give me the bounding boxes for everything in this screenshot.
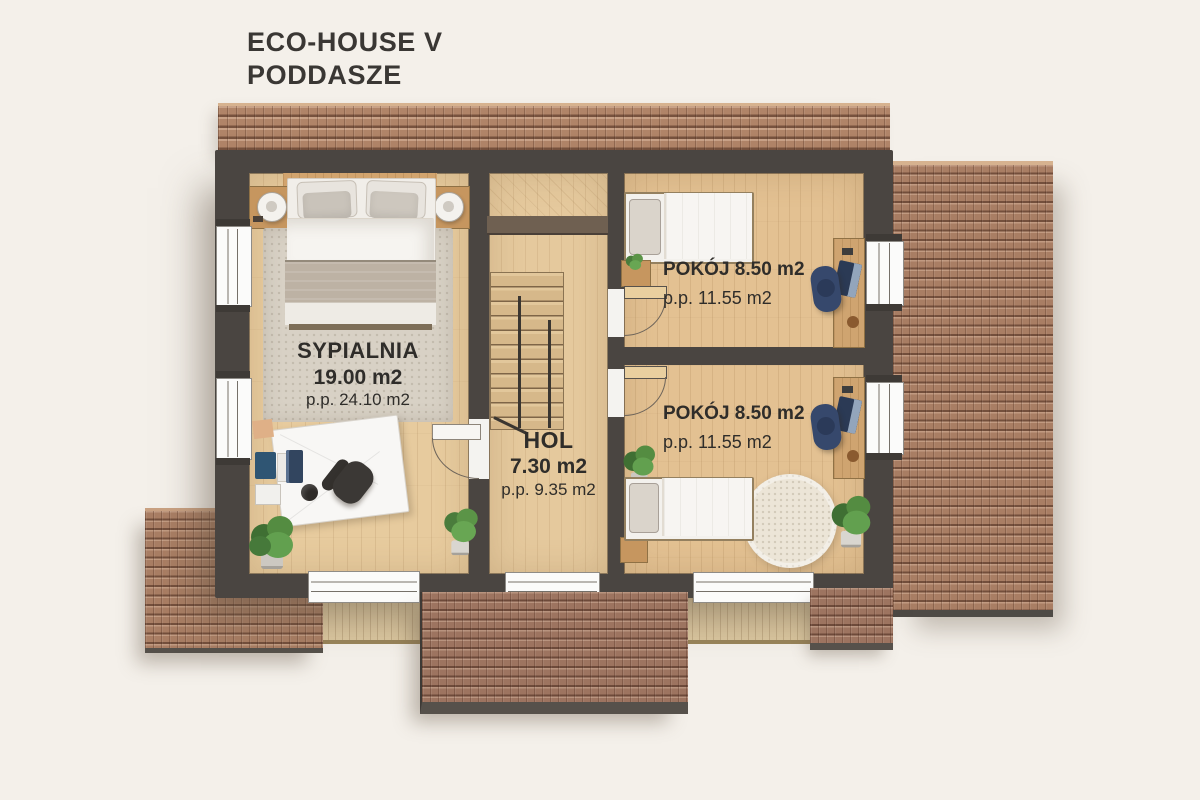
floor-plan-canvas: ECO-HOUSE V PODDASZE — [0, 0, 1200, 800]
duvet — [664, 193, 752, 259]
single-bed-bottom — [624, 477, 754, 541]
plan-title-line1: ECO-HOUSE V — [247, 26, 443, 59]
room-label-pokoj-top: POKÓJ 8.50 m2 p.p. 11.55 m2 — [663, 256, 833, 312]
room-name: HOL — [489, 426, 608, 454]
round-rug — [743, 474, 837, 568]
window-frame-cap — [866, 453, 902, 460]
duvet — [662, 478, 752, 536]
potted-plant — [441, 505, 481, 551]
pillow — [369, 191, 418, 220]
roof-bottom-right — [810, 588, 893, 650]
room-usable-area: p.p. 24.10 m2 — [263, 390, 453, 411]
pillow — [629, 199, 661, 255]
plan-title: ECO-HOUSE V PODDASZE — [247, 26, 443, 92]
double-bed — [287, 178, 434, 330]
phone — [842, 386, 853, 393]
door-opening-pokoj-top — [608, 289, 624, 337]
desk-lamp — [847, 316, 859, 328]
door-opening-pokoj-bottom — [608, 369, 624, 417]
notebook-blue — [255, 452, 276, 479]
window-frame-cap — [216, 371, 250, 378]
room-area: 7.30 m2 — [489, 454, 608, 480]
room-label-hol: HOL 7.30 m2 p.p. 9.35 m2 — [489, 426, 608, 500]
bedside-lamp-right — [434, 192, 464, 222]
room-name: SYPIALNIA — [263, 338, 453, 365]
window-left-2 — [216, 378, 252, 460]
bed-frame-foot — [289, 324, 432, 330]
roof-bottom-center — [420, 592, 688, 714]
room-usable-area: p.p. 11.55 m2 — [663, 285, 833, 312]
stair-beam — [487, 216, 608, 235]
window-right-2 — [866, 382, 904, 455]
potted-plant — [830, 494, 872, 542]
window-frame-cap — [216, 305, 250, 312]
window-bottom-3 — [693, 572, 814, 603]
room-label-sypialnia: SYPIALNIA 19.00 m2 p.p. 24.10 m2 — [263, 338, 453, 411]
staircase — [490, 272, 564, 430]
bed-sheet-fold — [285, 302, 436, 325]
wall-between-rooms — [608, 347, 864, 365]
pillow — [629, 483, 659, 533]
desk-lamp — [847, 450, 859, 462]
potted-plant — [249, 514, 295, 566]
window-frame-cap — [866, 375, 902, 382]
pillow — [302, 191, 351, 220]
window-left-1 — [216, 226, 252, 307]
laptop — [286, 450, 303, 483]
window-frame-cap — [866, 234, 902, 241]
room-usable-area: p.p. 9.35 m2 — [489, 480, 608, 501]
window-right-1 — [866, 241, 904, 306]
window-bottom-1 — [308, 571, 420, 603]
plant-small — [624, 252, 645, 275]
desk-tray — [252, 419, 274, 439]
bed-blanket — [285, 260, 436, 306]
window-frame-cap — [216, 219, 250, 226]
room-area: 19.00 m2 — [263, 365, 453, 391]
room-label-pokoj-bottom: POKÓJ 8.50 m2 p.p. 11.55 m2 — [663, 400, 833, 456]
stair-railing — [518, 296, 521, 428]
room-name-area: POKÓJ 8.50 m2 — [663, 400, 833, 429]
phone — [842, 248, 853, 255]
desk-speaker — [301, 484, 318, 501]
room-usable-area: p.p. 11.55 m2 — [663, 429, 833, 456]
plan-title-line2: PODDASZE — [247, 59, 443, 92]
nightstand-item — [253, 216, 263, 222]
stair-landing-floor — [489, 173, 608, 217]
room-name-area: POKÓJ 8.50 m2 — [663, 256, 833, 285]
roof-right — [893, 161, 1053, 617]
window-frame-cap — [216, 458, 250, 465]
printer — [255, 484, 281, 505]
stair-railing — [548, 320, 551, 428]
window-frame-cap — [866, 304, 902, 311]
